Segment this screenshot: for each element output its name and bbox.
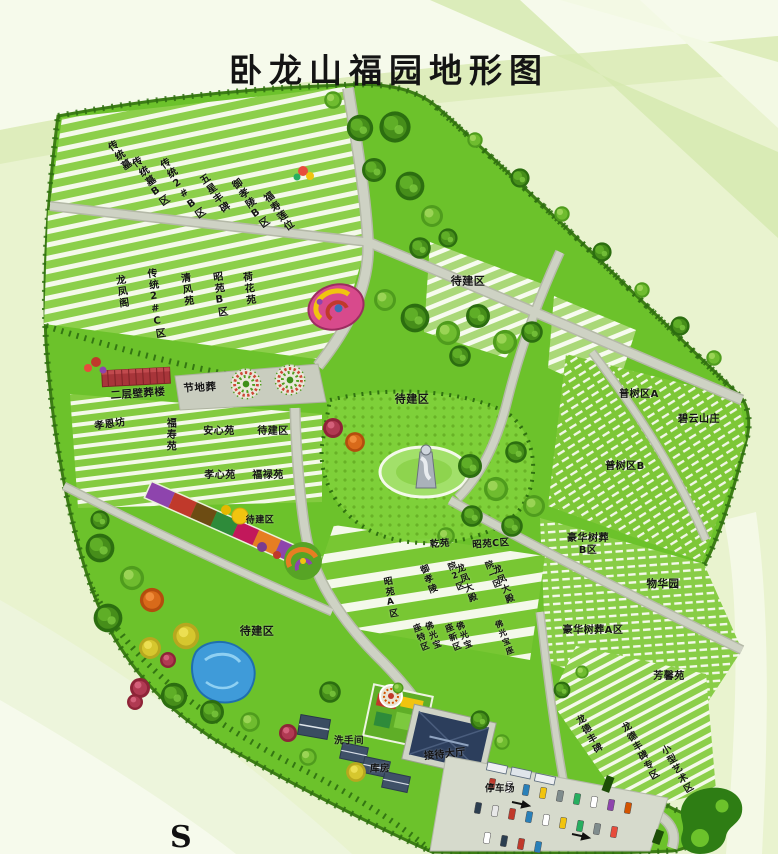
topographic-map: 传统墓传统墓B区传统2#B区五星丰碑御孝陵B区福寿莲位龙凤阁传统2#C区清风苑昭… <box>0 0 778 854</box>
region-label: 豪华树葬A区 <box>563 625 624 637</box>
region-label: 节地葬 <box>183 381 217 395</box>
region-label: 豪华树葬 B区 <box>567 533 609 557</box>
region-label: 物华园 <box>647 578 680 590</box>
region-label: 普树区B <box>605 461 645 473</box>
parking-label: 停车场 <box>485 783 515 794</box>
wall-burial-building <box>102 367 171 387</box>
region-label: 碧云山庄 <box>678 414 720 426</box>
region-label: 待建区 <box>246 516 275 527</box>
map-title: 卧龙山福园地形图 <box>229 44 549 92</box>
region-label: 待建区 <box>257 426 289 438</box>
region-label: 芳馨苑 <box>653 671 685 683</box>
region-label: 孝心苑 <box>204 470 236 482</box>
region-label: 福寿苑 <box>164 418 175 453</box>
region-label: 福禄苑 <box>252 470 284 482</box>
region-label: 乾苑 <box>430 538 451 551</box>
compass-south-label: S <box>170 820 192 854</box>
region-label: 待建区 <box>240 626 275 639</box>
region-label: 普树区A <box>619 389 659 401</box>
region-label: 待建区 <box>395 394 430 407</box>
region-label: 待建区 <box>451 276 486 289</box>
warehouse-label: 库房 <box>370 763 390 774</box>
restroom-label: 洗手间 <box>334 735 364 746</box>
region-label: 安心苑 <box>203 426 235 438</box>
